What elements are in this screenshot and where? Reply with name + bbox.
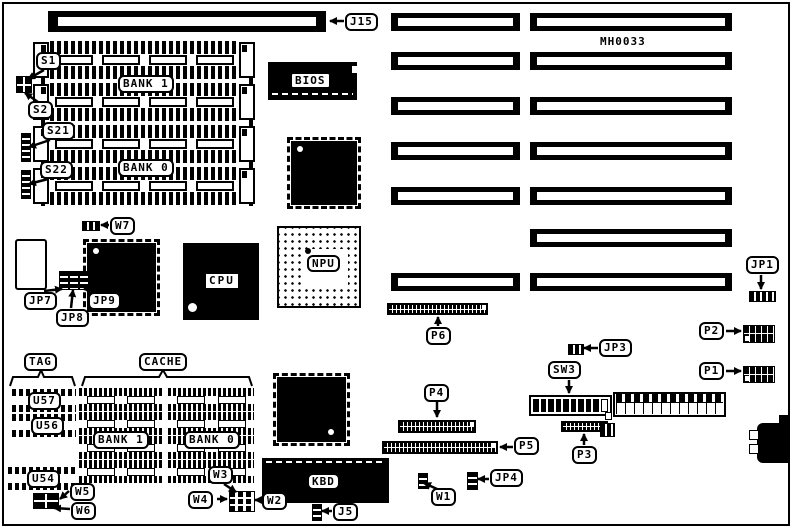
label-memory-bank0: BANK 0	[118, 159, 174, 177]
callout-p6: P6	[426, 327, 451, 345]
callout-w1: W1	[431, 488, 456, 506]
label-cache-bank0: BANK 0	[184, 431, 240, 449]
callout-w4: W4	[188, 491, 213, 509]
npu-label: NPU	[307, 255, 340, 272]
callout-s1: S1	[36, 52, 61, 70]
callout-w3: W3	[208, 466, 233, 484]
motherboard-diagram: MH0033 CPU BIOS	[0, 0, 792, 528]
callout-jp1: JP1	[746, 256, 779, 274]
callout-s22: S22	[40, 161, 73, 179]
label-u56: U56	[31, 417, 64, 435]
callout-w7: W7	[110, 217, 135, 235]
label-memory-bank1: BANK 1	[118, 75, 174, 93]
callout-jp3: JP3	[599, 339, 632, 357]
callout-w6: W6	[71, 502, 96, 520]
callout-jp4: JP4	[490, 469, 523, 487]
callout-w5: W5	[70, 483, 95, 501]
label-cache: CACHE	[139, 353, 187, 371]
callout-s2: S2	[28, 101, 53, 119]
bios-label: BIOS	[291, 73, 330, 88]
callout-s21: S21	[42, 122, 75, 140]
callout-w2: W2	[262, 492, 287, 510]
label-u57: U57	[28, 392, 61, 410]
callout-p5: P5	[514, 437, 539, 455]
kbd-label: KBD	[307, 473, 340, 490]
callout-jp8: JP8	[56, 309, 89, 327]
callout-p1: P1	[699, 362, 724, 380]
callout-p4: P4	[424, 384, 449, 402]
label-tag: TAG	[24, 353, 57, 371]
label-cache-bank1: BANK 1	[93, 431, 149, 449]
callout-j15: J15	[345, 13, 378, 31]
callout-jp7: JP7	[24, 292, 57, 310]
callout-j5: J5	[333, 503, 358, 521]
callout-p2: P2	[699, 322, 724, 340]
callout-p3: P3	[572, 446, 597, 464]
label-u54: U54	[27, 470, 60, 488]
callout-jp9: JP9	[88, 292, 121, 310]
cpu-label: CPU	[206, 274, 238, 288]
callout-sw3: SW3	[548, 361, 581, 379]
